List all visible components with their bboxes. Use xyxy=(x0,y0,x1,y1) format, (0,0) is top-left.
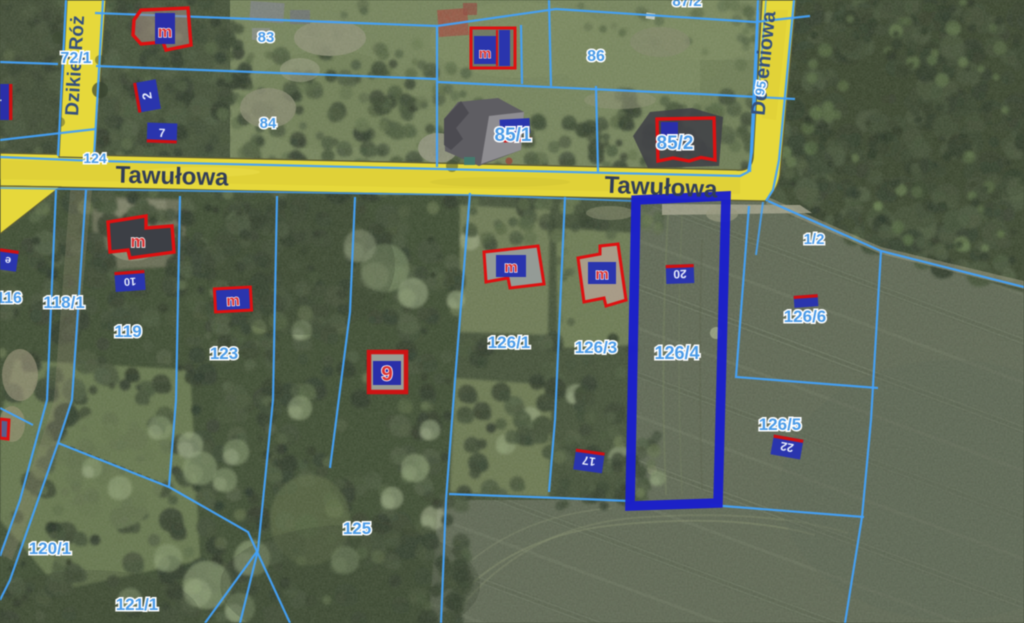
svg-text:125: 125 xyxy=(343,519,371,538)
svg-text:116: 116 xyxy=(0,290,22,307)
svg-text:83: 83 xyxy=(258,29,275,46)
svg-text:m: m xyxy=(595,266,608,283)
svg-text:126/1: 126/1 xyxy=(488,333,531,352)
svg-text:m: m xyxy=(226,292,240,310)
svg-text:17: 17 xyxy=(581,453,596,469)
svg-text:85/1: 85/1 xyxy=(495,125,532,146)
svg-text:7: 7 xyxy=(158,126,165,140)
svg-text:86: 86 xyxy=(587,48,605,65)
svg-text:9: 9 xyxy=(381,363,393,386)
svg-text:Tawułowa: Tawułowa xyxy=(604,172,719,204)
svg-text:120/1: 120/1 xyxy=(29,539,72,558)
svg-text:126/5: 126/5 xyxy=(759,415,802,434)
svg-text:m: m xyxy=(504,259,517,276)
svg-text:22: 22 xyxy=(779,439,795,455)
svg-text:95: 95 xyxy=(752,80,769,97)
svg-text:87/2: 87/2 xyxy=(672,0,701,10)
svg-text:Tawułowa: Tawułowa xyxy=(115,162,229,192)
svg-text:1/2: 1/2 xyxy=(804,231,825,248)
svg-text:123: 123 xyxy=(210,344,238,363)
svg-text:119: 119 xyxy=(114,322,141,341)
svg-text:126/4: 126/4 xyxy=(654,343,699,363)
svg-text:85/2: 85/2 xyxy=(657,133,694,154)
svg-text:20: 20 xyxy=(673,267,687,281)
svg-text:126/3: 126/3 xyxy=(575,338,618,357)
svg-text:m: m xyxy=(130,232,145,251)
svg-text:124: 124 xyxy=(83,150,107,166)
svg-text:r: r xyxy=(0,95,2,110)
svg-text:10: 10 xyxy=(123,275,136,288)
svg-text:126/6: 126/6 xyxy=(784,307,827,326)
svg-text:121/1: 121/1 xyxy=(116,595,159,614)
svg-text:118/1: 118/1 xyxy=(43,293,85,312)
svg-text:84: 84 xyxy=(260,115,277,132)
svg-text:72/1: 72/1 xyxy=(60,50,91,67)
svg-text:m: m xyxy=(479,45,491,61)
svg-text:m: m xyxy=(158,24,172,41)
